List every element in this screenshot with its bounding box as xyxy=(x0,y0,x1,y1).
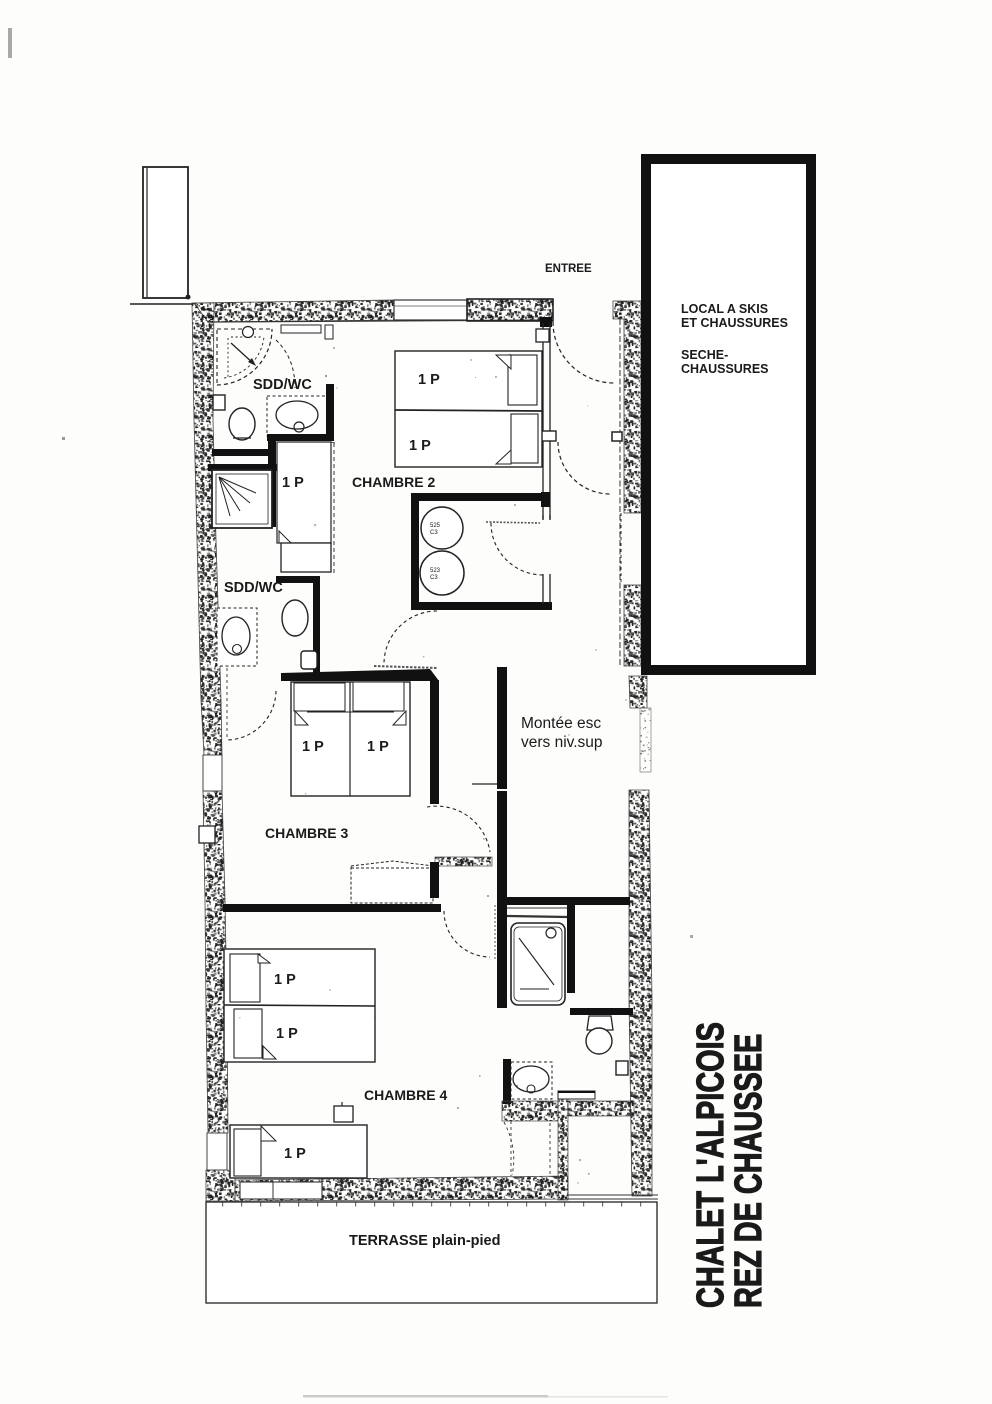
svg-text:1 P: 1 P xyxy=(302,739,324,755)
svg-text:1 P: 1 P xyxy=(418,372,440,388)
svg-text:CHALET L'ALPICOIS: CHALET L'ALPICOIS xyxy=(689,1022,732,1308)
svg-text:TERRASSE plain-pied: TERRASSE plain-pied xyxy=(349,1233,500,1249)
svg-text:C3: C3 xyxy=(430,575,438,581)
svg-text:CHAMBRE 3: CHAMBRE 3 xyxy=(265,825,348,841)
svg-text:1 P: 1 P xyxy=(409,438,431,454)
svg-text:1 P: 1 P xyxy=(284,1146,306,1162)
svg-text:1 P: 1 P xyxy=(367,739,389,755)
svg-text:CHAMBRE 4: CHAMBRE 4 xyxy=(364,1087,447,1103)
svg-text:ET CHAUSSURES: ET CHAUSSURES xyxy=(681,316,788,330)
svg-text:SECHE-: SECHE- xyxy=(681,348,728,362)
svg-text:SDD/WC: SDD/WC xyxy=(253,377,312,393)
svg-text:LOCAL A SKIS: LOCAL A SKIS xyxy=(681,302,768,316)
svg-text:523: 523 xyxy=(430,568,441,574)
svg-text:525: 525 xyxy=(430,523,441,529)
svg-text:REZ DE CHAUSSEE: REZ DE CHAUSSEE xyxy=(727,1034,770,1308)
svg-text:1 P: 1 P xyxy=(274,972,296,988)
svg-text:vers niv.sup: vers niv.sup xyxy=(521,734,603,751)
svg-text:CHAUSSURES: CHAUSSURES xyxy=(681,362,769,376)
svg-text:Montée esc: Montée esc xyxy=(521,715,601,732)
svg-text:C3: C3 xyxy=(430,530,438,536)
svg-text:1 P: 1 P xyxy=(276,1026,298,1042)
svg-text:1 P: 1 P xyxy=(282,475,304,491)
svg-text:CHAMBRE 2: CHAMBRE 2 xyxy=(352,474,435,490)
svg-text:ENTREE: ENTREE xyxy=(545,263,592,275)
svg-text:SDD/WC: SDD/WC xyxy=(224,580,283,596)
